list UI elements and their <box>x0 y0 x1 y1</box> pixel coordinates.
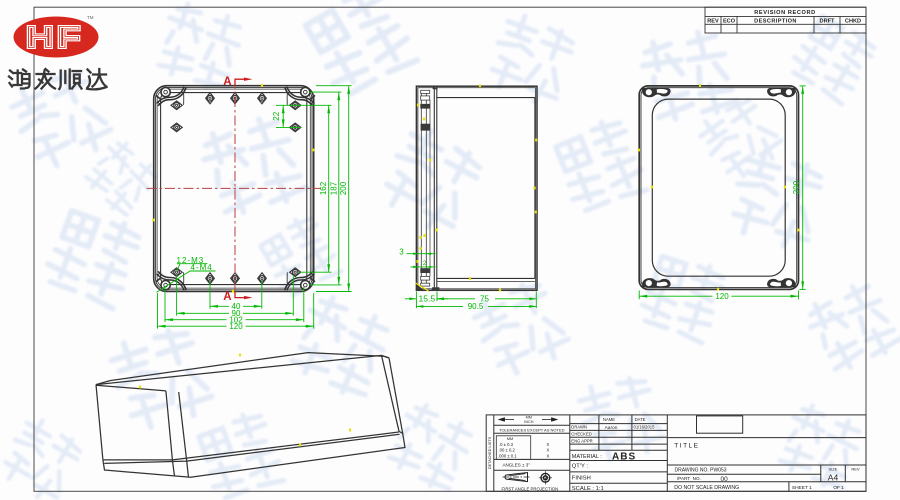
svg-text:.0 ± 0.3: .0 ± 0.3 <box>499 442 514 447</box>
svg-text:CHECKED: CHECKED <box>571 432 591 437</box>
svg-text:SCALE : 1:1: SCALE : 1:1 <box>572 486 604 492</box>
svg-text:CHKD: CHKD <box>845 18 861 24</box>
svg-text:2: 2 <box>423 260 427 267</box>
svg-text:QT'Y :: QT'Y : <box>572 464 589 470</box>
svg-text:15.5: 15.5 <box>419 294 436 304</box>
svg-text:/PART NO.: /PART NO. <box>677 476 701 481</box>
svg-text:NAME: NAME <box>603 417 615 422</box>
svg-text:HF: HF <box>26 20 83 55</box>
svg-text:X: X <box>547 448 550 453</box>
svg-text:.00 ± 0.2: .00 ± 0.2 <box>499 448 516 453</box>
svg-text:TOLERANCES EXCEPT AS NOTED: TOLERANCES EXCEPT AS NOTED <box>499 427 565 432</box>
svg-text:ENG APPR: ENG APPR <box>571 438 592 443</box>
svg-text:ECO: ECO <box>723 18 736 24</box>
svg-text:SHEET 1: SHEET 1 <box>792 485 812 491</box>
svg-text:22: 22 <box>272 111 281 120</box>
svg-text:ANGLES ± 3°: ANGLES ± 3° <box>503 462 531 467</box>
svg-text:DRFT: DRFT <box>820 18 835 24</box>
svg-text:REV: REV <box>851 466 860 471</box>
svg-text:ABS: ABS <box>612 451 636 462</box>
svg-text:200: 200 <box>339 181 348 195</box>
svg-text:REV: REV <box>707 18 719 24</box>
svg-text:A: A <box>223 291 231 303</box>
svg-text:162: 162 <box>319 181 328 195</box>
svg-text:FINISH: FINISH <box>572 476 591 482</box>
svg-text:OF 1: OF 1 <box>833 485 844 491</box>
svg-text:01/16/2015: 01/16/2015 <box>634 425 656 430</box>
svg-text:187: 187 <box>329 181 338 195</box>
svg-text:120: 120 <box>715 292 729 301</box>
svg-text:200: 200 <box>792 180 801 194</box>
svg-text:Aaron: Aaron <box>605 425 618 431</box>
svg-text:SIZE: SIZE <box>829 466 838 471</box>
svg-text:90.5: 90.5 <box>468 302 484 311</box>
svg-text:.000 ± 0.1: .000 ± 0.1 <box>498 453 517 458</box>
svg-text:DETACHED LISTS: DETACHED LISTS <box>488 436 492 469</box>
svg-text:A: A <box>223 76 231 88</box>
svg-text:REVISION RECORD: REVISION RECORD <box>754 10 816 16</box>
svg-text:3: 3 <box>399 248 404 257</box>
svg-text:DESCRIPTION: DESCRIPTION <box>754 18 797 24</box>
svg-text:DO NOT SCALE DRAWING: DO NOT SCALE DRAWING <box>674 485 739 491</box>
svg-text:TM: TM <box>87 15 94 20</box>
svg-text:INCH: INCH <box>524 420 534 424</box>
svg-text:X: X <box>547 453 550 458</box>
svg-text:MM: MM <box>507 437 513 441</box>
svg-text:FIRST ANGLE PROJECTION: FIRST ANGLE PROJECTION <box>502 486 559 491</box>
svg-text:120: 120 <box>229 322 243 331</box>
svg-text:MATERIAL :: MATERIAL : <box>572 454 602 460</box>
svg-text:DRAWN: DRAWN <box>571 425 587 430</box>
svg-text:00: 00 <box>721 476 729 483</box>
svg-text:TITLE: TITLE <box>674 443 699 450</box>
svg-text:A4: A4 <box>828 473 839 483</box>
svg-text:DRAWING NO. PW053: DRAWING NO. PW053 <box>675 468 727 474</box>
svg-text:4-M4: 4-M4 <box>191 263 213 272</box>
svg-text:DATE: DATE <box>635 417 646 422</box>
svg-text:X: X <box>547 442 550 447</box>
